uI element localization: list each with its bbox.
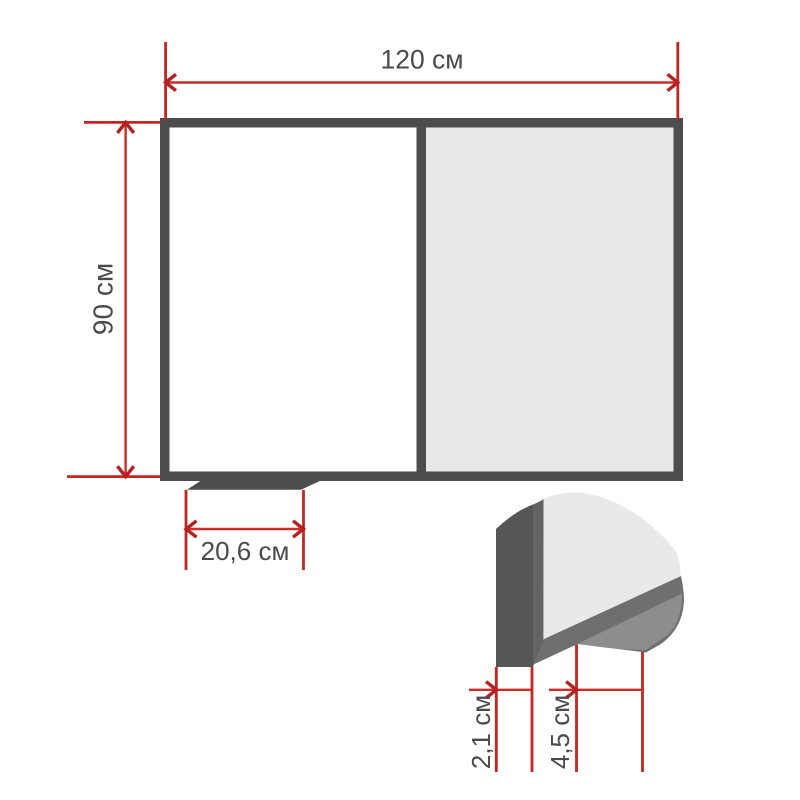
svg-text:20,6 см: 20,6 см xyxy=(201,536,290,566)
svg-text:2,1 см: 2,1 см xyxy=(466,695,496,769)
svg-text:90 см: 90 см xyxy=(88,263,119,335)
svg-text:4,5 см: 4,5 см xyxy=(545,695,575,769)
svg-text:120 см: 120 см xyxy=(380,45,463,75)
